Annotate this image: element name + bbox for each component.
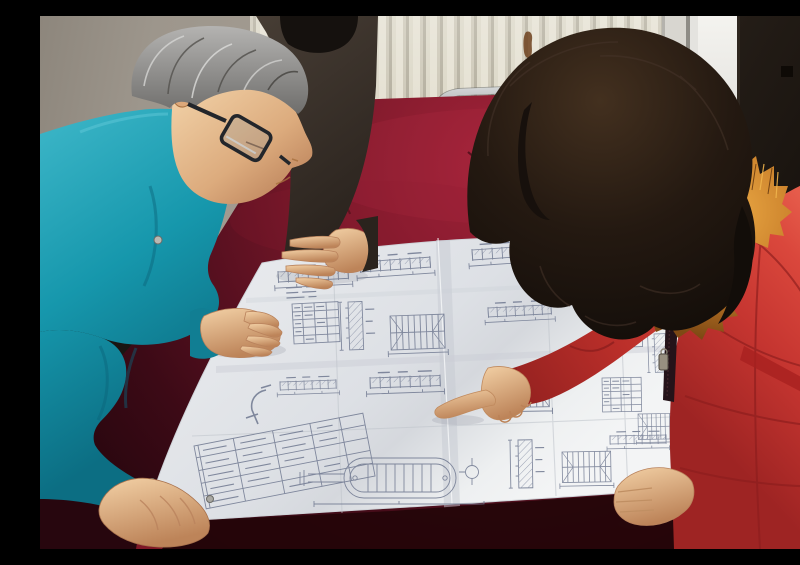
jacket-snap [154, 236, 162, 244]
door-lock-plate [781, 66, 793, 77]
cuff-button [207, 496, 214, 503]
scene-overlay [40, 16, 800, 549]
photo-scene [40, 16, 800, 549]
zipper-pull [659, 354, 668, 370]
engineer-hand-upper [190, 308, 282, 359]
